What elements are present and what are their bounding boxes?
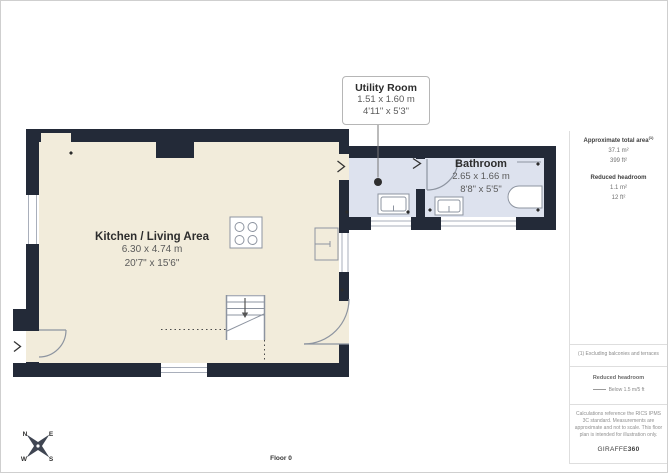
compass-s: S [49,456,54,463]
kitchen-dim-metric: 6.30 x 4.74 m [52,243,252,257]
kitchen-right-door [304,299,349,344]
utility-dim-metric: 1.51 x 1.60 m [345,94,427,106]
compass-w: W [21,456,28,463]
entrance-door [39,330,66,357]
approx-area-footnote-ref: (1) [649,135,654,140]
callout-leader [374,122,382,186]
sidebar-left-border [569,131,570,463]
bathroom-dim-imperial: 8'8" x 5'5" [423,183,539,196]
compass-e: E [49,431,54,438]
total-area-m2: 37.1 m² [571,148,666,154]
kitchen-counter-icon [315,228,338,260]
area-summary: Approximate total area(1) 37.1 m² 399 ft… [571,135,666,201]
legend-item-text: Below 1.5 m/5 ft [609,387,645,393]
staircase [227,295,265,340]
kitchen-name: Kitchen / Living Area [52,231,252,243]
sidebar-divider-4 [569,463,668,464]
floor-plan: Kitchen / Living Area 6.30 x 4.74 m 20'7… [1,1,668,473]
approx-area-text: Approximate total area [584,138,649,144]
utility-name: Utility Room [345,82,427,94]
reduced-headroom-m2: 1.1 m² [571,185,666,191]
giraffe360-logo: GIRAFFE360 [574,446,663,453]
washing-machine-icon [378,194,409,214]
total-area-ft2: 399 ft² [571,158,666,164]
logo-name: GIRAFFE [597,446,627,453]
footnote-text: (1) Excluding balconies and terraces [571,351,666,357]
bathroom-dim-metric: 2.65 x 1.66 m [423,170,539,183]
floorplan-page: Kitchen / Living Area 6.30 x 4.74 m 20'7… [0,0,668,473]
sidebar-divider-2 [569,366,668,367]
sidebar-divider-3 [569,404,668,405]
utility-room-callout: Utility Room 1.51 x 1.60 m 4'11" x 5'3" [342,76,430,125]
floor-label: Floor 0 [251,455,311,462]
bathroom-label: Bathroom 2.65 x 1.66 m 8'8" x 5'5" [423,158,539,196]
approx-area-label: Approximate total area(1) [571,135,666,144]
window-frame-lines [29,195,517,373]
legend-row: Below 1.5 m/5 ft [571,387,666,393]
disclaimer-text: Calculations reference the RICS IPMS 3C … [574,411,663,439]
footnote: (1) Excluding balconies and terraces [571,351,666,357]
reduced-headroom-ft2: 12 ft² [571,195,666,201]
bathroom-arrow-icon [413,159,421,169]
kitchen-label: Kitchen / Living Area 6.30 x 4.74 m 20'7… [52,231,252,271]
kitchen-dim-imperial: 20'7" x 15'6" [52,257,252,271]
compass-n: N [23,431,28,438]
utility-arrow-icon [338,161,345,172]
reduced-headroom-label: Reduced headroom [571,175,666,181]
utility-dim-imperial: 4'11" x 5'3" [345,106,427,118]
disclaimer-block: Calculations reference the RICS IPMS 3C … [574,411,663,453]
compass-rose: N E W S [18,425,58,465]
sidebar-divider-1 [569,344,668,345]
bathroom-sink-icon [435,197,463,215]
headroom-legend: Reduced headroom Below 1.5 m/5 ft [571,375,666,393]
entrance-arrow-icon [14,342,21,352]
dashed-line-icon [593,389,606,390]
bathroom-name: Bathroom [423,158,539,170]
logo-suffix: 360 [628,446,640,453]
legend-title: Reduced headroom [571,375,666,381]
